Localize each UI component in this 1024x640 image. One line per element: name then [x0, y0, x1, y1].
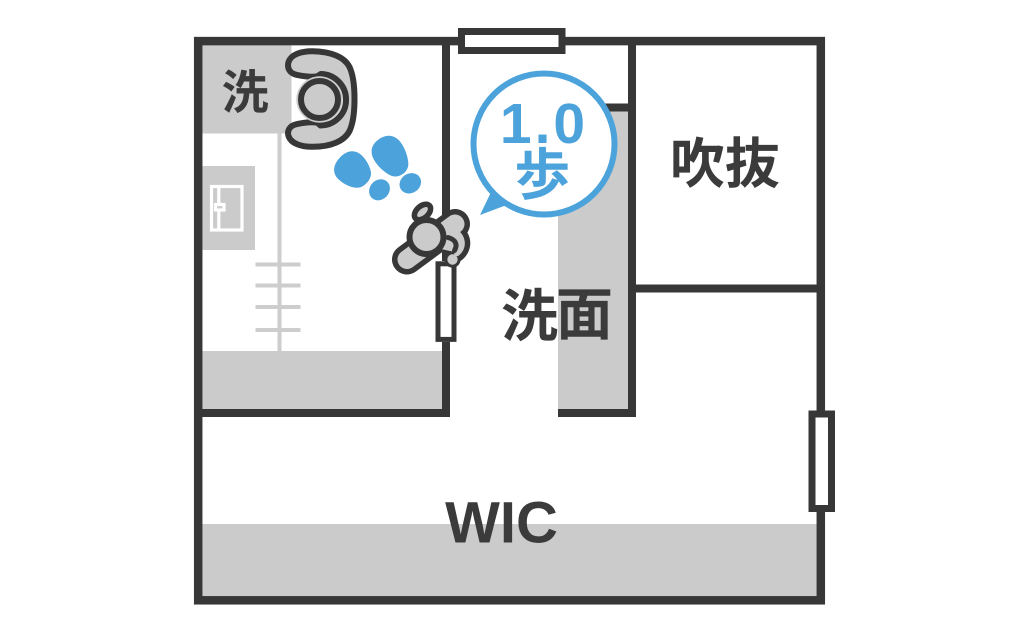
svg-text:WIC: WIC — [445, 491, 558, 556]
svg-text:1.0: 1.0 — [500, 92, 588, 156]
